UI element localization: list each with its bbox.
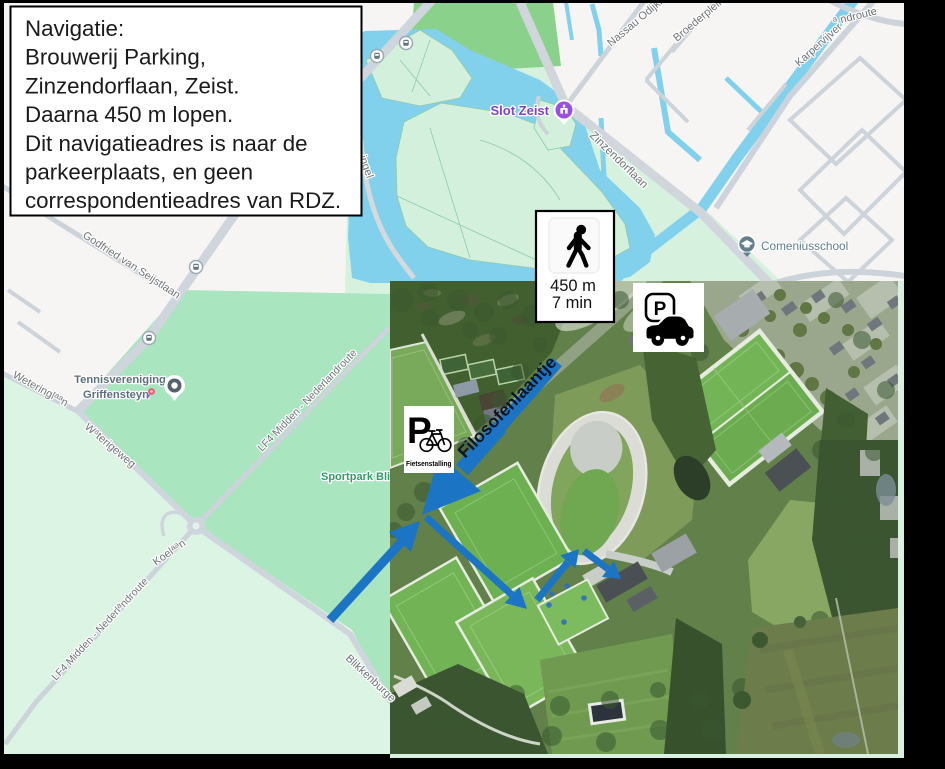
svg-text:7 min: 7 min [552,294,592,312]
svg-text:Daarna 450 m lopen.: Daarna 450 m lopen. [25,102,233,127]
svg-text:Zinzendorflaan, Zeist.: Zinzendorflaan, Zeist. [25,73,239,98]
svg-text:parkeerplaats, en geen: parkeerplaats, en geen [25,160,253,185]
svg-text:correspondentieadres van RDZ.: correspondentieadres van RDZ. [25,188,341,213]
svg-text:Griffensteyn: Griffensteyn [83,389,149,401]
svg-text:Fietsenstalling: Fietsenstalling [406,459,452,468]
svg-text:450 m: 450 m [550,277,596,295]
svg-text:Tennisvereniging: Tennisvereniging [74,374,166,386]
svg-text:Dit navigatieadres is naar de: Dit navigatieadres is naar de [25,131,308,156]
svg-text:Navigatie:: Navigatie: [25,16,124,41]
svg-text:Comeniusschool: Comeniusschool [761,239,848,253]
svg-text:Brouwerij Parking,: Brouwerij Parking, [25,45,206,70]
svg-text:Slot Zeist: Slot Zeist [490,103,549,118]
